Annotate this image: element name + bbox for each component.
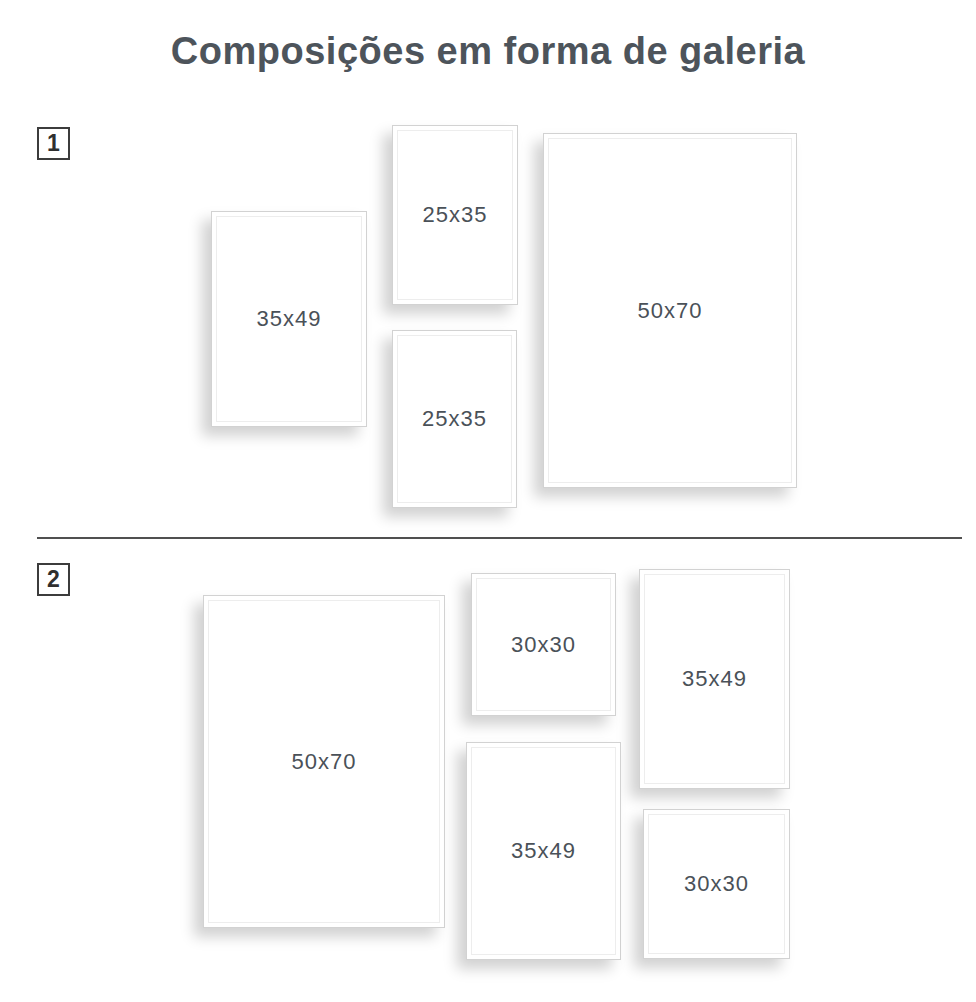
frame-35x49-right: 35x49 [639,569,790,789]
frame-50x70: 50x70 [543,133,797,488]
frame-35x49: 35x49 [211,211,367,427]
frame-size-label: 50x70 [638,298,703,324]
page-title: Composições em forma de galeria [0,30,976,73]
section-divider [37,537,962,539]
frame-30x30-bottom: 30x30 [643,809,790,959]
section-1-number-badge: 1 [37,127,70,160]
frame-size-label: 35x49 [257,306,322,332]
section-2-number-badge: 2 [37,563,70,596]
frame-size-label: 25x35 [423,202,488,228]
frame-35x49-middle: 35x49 [466,742,621,960]
frame-size-label: 35x49 [682,666,747,692]
frame-30x30-top: 30x30 [471,573,616,716]
frame-25x35-bottom: 25x35 [392,330,517,508]
frame-size-label: 30x30 [684,871,749,897]
frame-50x70: 50x70 [203,595,445,928]
frame-size-label: 35x49 [511,838,576,864]
frame-25x35-top: 25x35 [392,125,518,305]
frame-size-label: 50x70 [292,749,357,775]
frame-size-label: 30x30 [511,632,576,658]
frame-size-label: 25x35 [422,406,487,432]
section-2-number: 2 [47,566,60,593]
section-1-number: 1 [47,130,60,157]
gallery-compositions-diagram: Composições em forma de galeria 1 35x49 … [0,0,976,1002]
